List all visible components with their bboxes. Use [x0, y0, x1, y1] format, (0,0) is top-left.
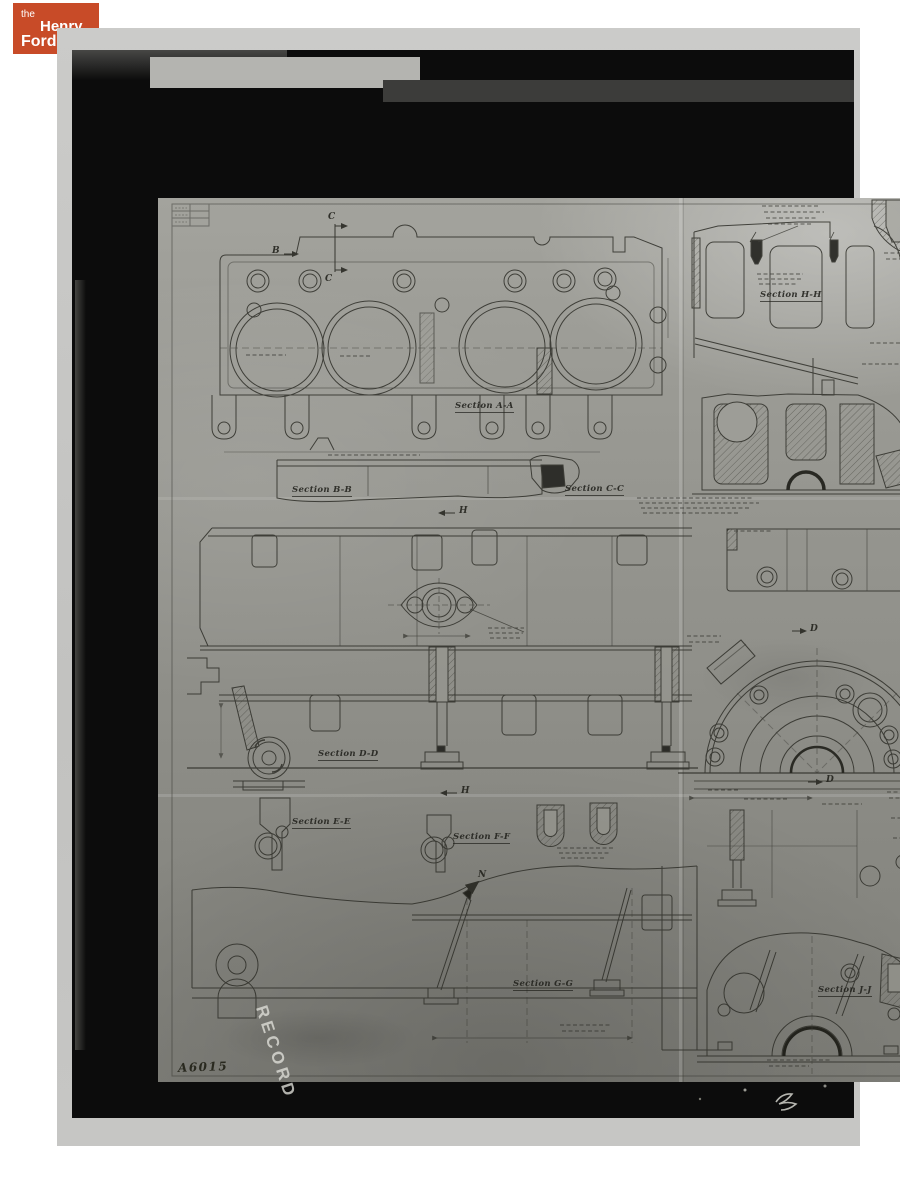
callout-arrows	[284, 224, 822, 890]
bearing-housing	[233, 737, 305, 790]
section-label-f-f: Section F-F	[453, 832, 510, 844]
section-label-a-a: Section A-A	[455, 401, 514, 413]
logo-text-ford: Ford	[21, 34, 57, 50]
archival-photo-page: the Henry Ford	[0, 0, 900, 1200]
section-label-c-c: Section C-C	[565, 484, 624, 496]
callout-c-bottom: C	[325, 274, 332, 284]
callout-d-bottom: D	[826, 775, 834, 785]
stud-holes	[247, 268, 620, 317]
callout-h-top: H	[459, 506, 468, 516]
stud-sleeve-1	[421, 647, 463, 769]
section-ff-view	[421, 815, 454, 872]
right-upper-band	[727, 529, 900, 591]
stud-sleeve-2	[647, 647, 689, 769]
section-label-d-d: Section D-D	[318, 749, 378, 761]
section-label-g-g: Section G-G	[513, 979, 573, 991]
blueprint-paper: Section A-A Section B-B Section C-C Sect…	[158, 198, 900, 1082]
diagonal-stud-2	[590, 888, 631, 996]
section-dd-view	[187, 647, 698, 790]
callout-h-bottom: H	[461, 786, 470, 796]
end-view	[678, 640, 900, 798]
sheet-border	[172, 204, 900, 1076]
section-label-h-h: Section H-H	[760, 290, 822, 302]
callout-c-top: C	[328, 212, 335, 222]
mounting-tabs	[212, 395, 612, 439]
right-mid-section-view	[692, 380, 900, 494]
callout-d-top: D	[810, 624, 818, 634]
logo-text-the: the	[21, 10, 35, 20]
drawing-number: A6015	[178, 1059, 229, 1075]
section-label-e-e: Section E-E	[292, 817, 351, 829]
section-label-b-b: Section B-B	[292, 485, 352, 497]
annotation-text-illegible	[246, 206, 900, 1066]
film-border: Section A-A Section B-B Section C-C Sect…	[72, 50, 854, 1118]
callout-n: N	[478, 870, 486, 880]
callout-b: B	[272, 246, 280, 256]
oval-flange	[388, 578, 490, 634]
section-label-j-j: Section J-J	[818, 985, 872, 997]
engine-block-drawing	[158, 198, 900, 1082]
plan-view	[212, 225, 668, 452]
section-ee-view	[255, 798, 290, 870]
side-elevation	[200, 528, 900, 650]
valve-seat-details	[537, 803, 617, 847]
section-jj-view	[697, 810, 900, 1074]
diagonal-stud-1	[424, 887, 473, 1004]
